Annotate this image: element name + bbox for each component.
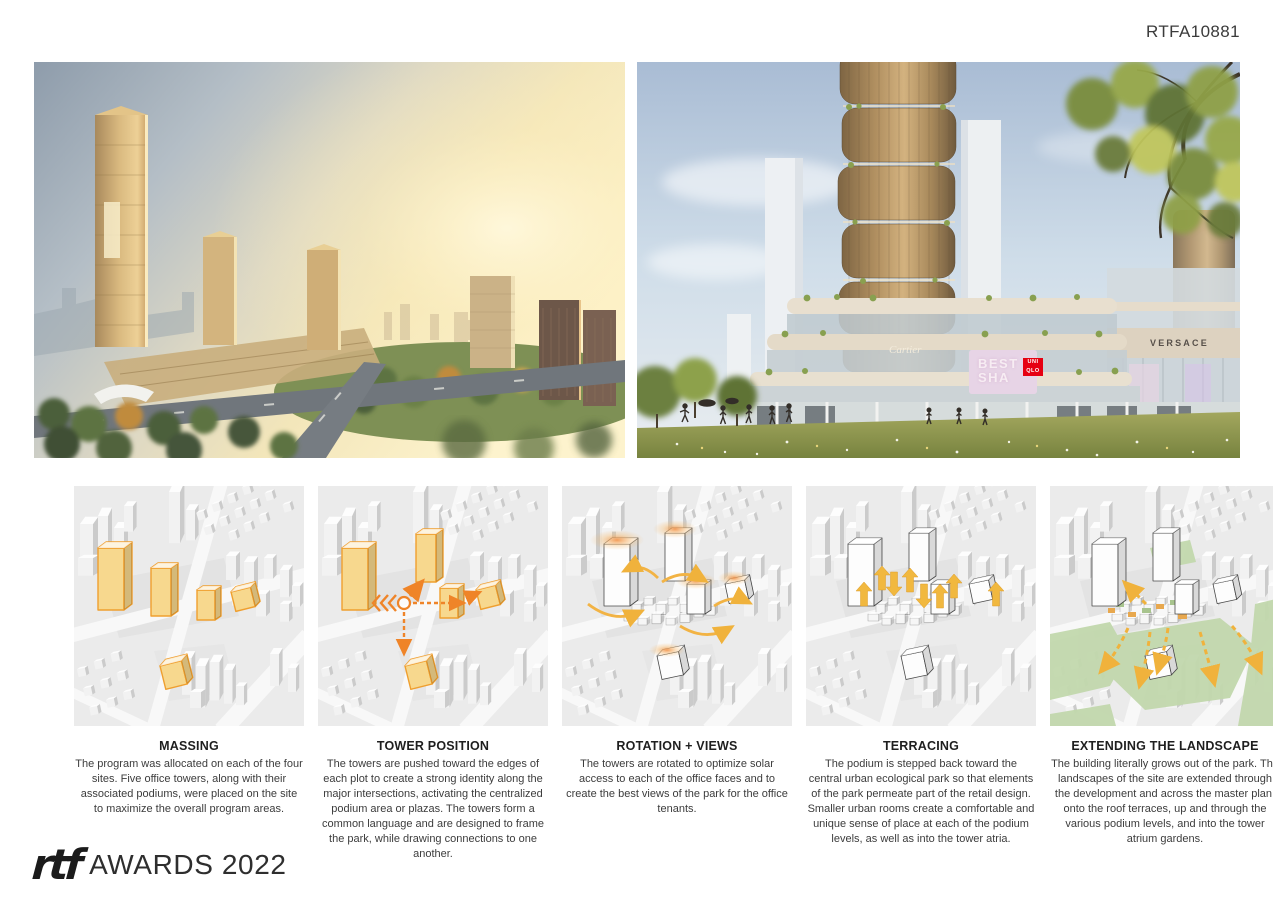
diagram-terracing: TERRACING The podium is stepped back tow… [806,486,1036,847]
diagram-extending-landscape: EXTENDING THE LANDSCAPE The building lit… [1050,486,1273,847]
uniqlo-logo: UNIQLO [1023,358,1043,376]
cartier-sign: Cartier [889,344,921,356]
entry-code: RTFA10881 [1146,22,1240,42]
caption-massing: MASSING The program was allocated on eac… [74,739,304,817]
footer: rtf AWARDS 2022 [32,846,287,884]
tower-position-diagram-art [318,486,548,726]
award-board: RTFA10881 [0,0,1273,900]
diagram-massing: MASSING The program was allocated on eac… [74,486,304,817]
caption-massing-body: The program was allocated on each of the… [75,757,303,817]
caption-rotation-views-body: The towers are rotated to optimize solar… [563,757,791,817]
caption-terracing-body: The podium is stepped back toward the ce… [807,757,1035,847]
caption-tower-position: TOWER POSITION The towers are pushed tow… [318,739,548,862]
caption-rotation-views-title: ROTATION + VIEWS [563,739,791,753]
led-screen-text: BESTSHA [978,357,1019,384]
caption-tower-position-body: The towers are pushed toward the edges o… [319,757,547,862]
rendering-aerial-sunset [34,62,625,458]
caption-massing-title: MASSING [75,739,303,753]
caption-extending-landscape-title: EXTENDING THE LANDSCAPE [1051,739,1273,753]
rendering-podium-park: VERSACE Cartier BESTSHA UNIQLO [637,62,1240,458]
diagram-rotation-views: ROTATION + VIEWS The towers are rotated … [562,486,792,817]
caption-terracing: TERRACING The podium is stepped back tow… [806,739,1036,847]
podium-render-graphic [637,62,1240,458]
caption-extending-landscape-body: The building literally grows out of the … [1051,757,1273,847]
caption-extending-landscape: EXTENDING THE LANDSCAPE The building lit… [1050,739,1273,847]
terracing-diagram-art [806,486,1036,726]
caption-terracing-title: TERRACING [807,739,1035,753]
massing-diagram-art [74,486,304,726]
uniqlo-top: UNI [1028,359,1039,365]
diagram-tower-position: TOWER POSITION The towers are pushed tow… [318,486,548,862]
extending-landscape-diagram-art [1050,486,1273,726]
caption-rotation-views: ROTATION + VIEWS The towers are rotated … [562,739,792,817]
caption-tower-position-title: TOWER POSITION [319,739,547,753]
led-line2: SHA [978,370,1010,385]
awards-text: AWARDS 2022 [89,849,287,881]
aerial-render-graphic [34,62,625,458]
uniqlo-bottom: QLO [1026,368,1039,374]
rtf-logo: rtf [31,846,81,884]
versace-sign: VERSACE [1150,338,1209,348]
rotation-views-diagram-art [562,486,792,726]
